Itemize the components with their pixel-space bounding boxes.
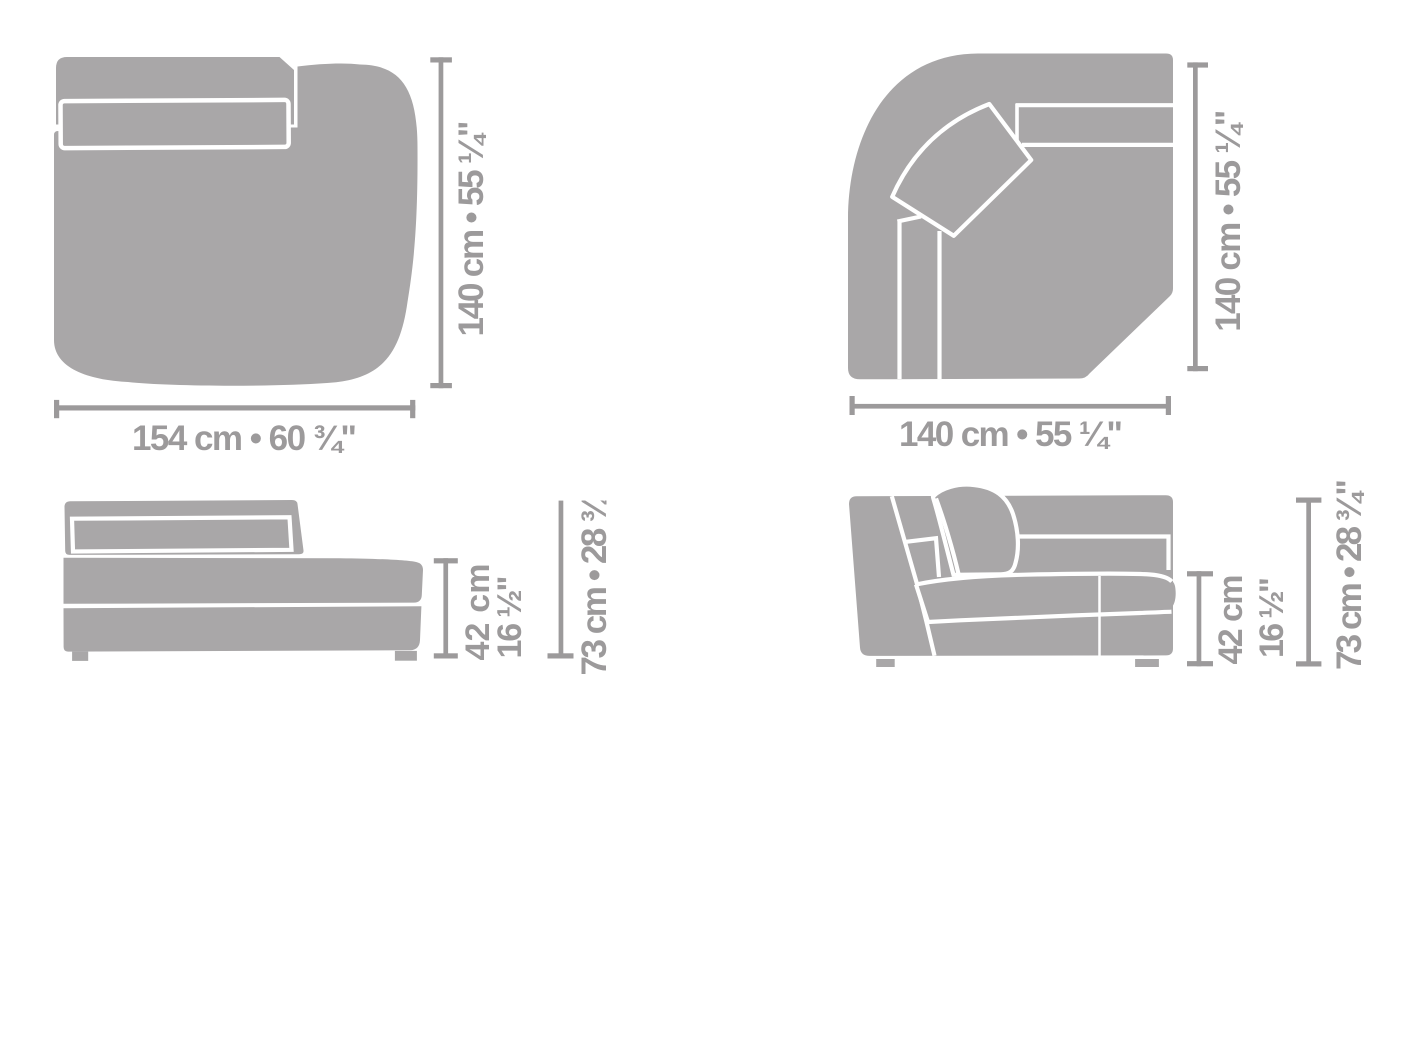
svg-text:140 cm • 55 ¼": 140 cm • 55 ¼"	[1209, 110, 1248, 332]
svg-text:140 cm • 55 ¼": 140 cm • 55 ¼"	[899, 415, 1123, 454]
svg-text:16 ½": 16 ½"	[491, 576, 529, 659]
svg-text:140 cm • 55 ¼": 140 cm • 55 ¼"	[452, 121, 491, 337]
svg-text:73 cm • 28 ¾": 73 cm • 28 ¾"	[575, 480, 614, 676]
svg-text:154 cm • 60 ¾": 154 cm • 60 ¾"	[132, 419, 357, 458]
svg-text:16 ½": 16 ½"	[1253, 577, 1291, 658]
svg-text:73 cm • 28 ¾": 73 cm • 28 ¾"	[1330, 479, 1369, 670]
svg-text:42 cm: 42 cm	[1212, 575, 1250, 665]
